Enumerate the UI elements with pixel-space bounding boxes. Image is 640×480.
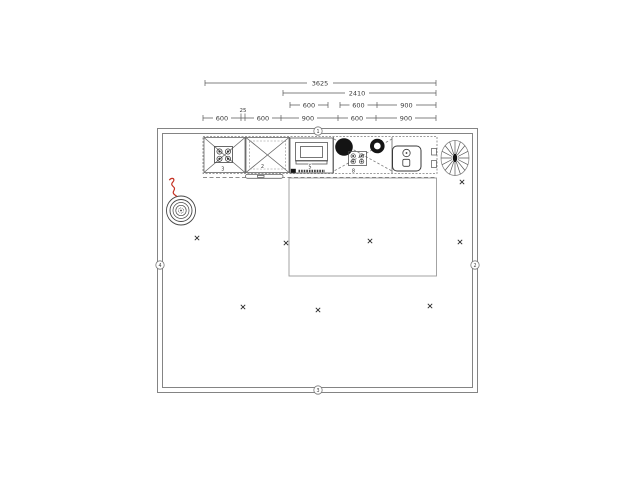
water-heater-symbol <box>167 178 196 225</box>
corner-cabinet: 2 <box>246 138 289 173</box>
tap-dot <box>406 152 408 154</box>
cabinet-x-cross <box>204 138 245 173</box>
handle-bar <box>246 174 284 178</box>
small-hob <box>349 152 367 166</box>
boiler-center <box>453 154 457 162</box>
cabinet-run: 3 2 5 <box>203 137 437 179</box>
interior-zone <box>289 178 437 276</box>
wall-marker-left: 4 <box>156 261 164 269</box>
marker-number: 4 <box>158 263 161 269</box>
unit-number: 3 <box>221 167 224 173</box>
dim-label: 600 <box>303 101 315 109</box>
dim-row-appliances: 600 600 900 <box>290 101 436 109</box>
dim-label: 900 <box>400 101 412 109</box>
drain-square <box>403 159 410 166</box>
sink-bowl-filled <box>335 138 353 156</box>
dim-label-3625: 3625 <box>312 79 329 87</box>
hob-cabinet: 3 <box>204 138 245 173</box>
wall-outer <box>158 129 478 393</box>
sink-hob-section: 8 <box>334 138 392 174</box>
dim-label-25: 25 <box>240 108 247 114</box>
dim-label: 900 <box>400 114 412 122</box>
unit-number: 2 <box>261 164 264 170</box>
dim-row-total: 3625 <box>205 79 436 87</box>
dim-label: 600 <box>352 101 364 109</box>
label-block <box>291 169 296 173</box>
position-markers-x <box>195 180 464 312</box>
marker-number: 1 <box>316 129 319 135</box>
wall-marker-top: 1 <box>314 127 322 135</box>
run-end-fittings <box>432 149 437 168</box>
basin-outline <box>393 146 422 171</box>
run-outline <box>203 137 437 174</box>
dim-label: 600 <box>351 114 363 122</box>
dim-label: 900 <box>302 114 314 122</box>
unit-number: 8 <box>352 169 355 175</box>
red-pipe <box>169 178 176 196</box>
sink-basin <box>393 146 422 171</box>
boiler-symbol <box>441 141 469 176</box>
wall-marker-right: 2 <box>471 261 479 269</box>
dimension-rows: 3625 2410 600 600 900 600 25 600 900 600… <box>203 79 436 122</box>
dim-row-cabinets: 600 25 600 900 600 900 <box>203 108 436 122</box>
heater-center-dot <box>180 210 182 212</box>
marker-number: 3 <box>316 388 319 394</box>
room-walls <box>158 129 478 393</box>
dim-label: 600 <box>216 114 228 122</box>
ring-burner-inner <box>374 143 381 150</box>
dim-label-2410: 2410 <box>349 89 366 97</box>
unit-number: 5 <box>308 164 311 170</box>
dim-row-2410: 2410 <box>283 89 436 97</box>
floor-plan-canvas: 3625 2410 600 600 900 600 25 600 900 600… <box>0 0 640 480</box>
dim-label: 600 <box>257 114 269 122</box>
wall-marker-bottom: 3 <box>314 386 322 394</box>
cabinet-x-cross <box>246 138 289 173</box>
oven-unit: 5 <box>290 138 333 173</box>
marker-number: 2 <box>473 263 476 269</box>
plan-svg: 3625 2410 600 600 900 600 25 600 900 600… <box>0 0 640 480</box>
oven-inner <box>301 147 323 158</box>
